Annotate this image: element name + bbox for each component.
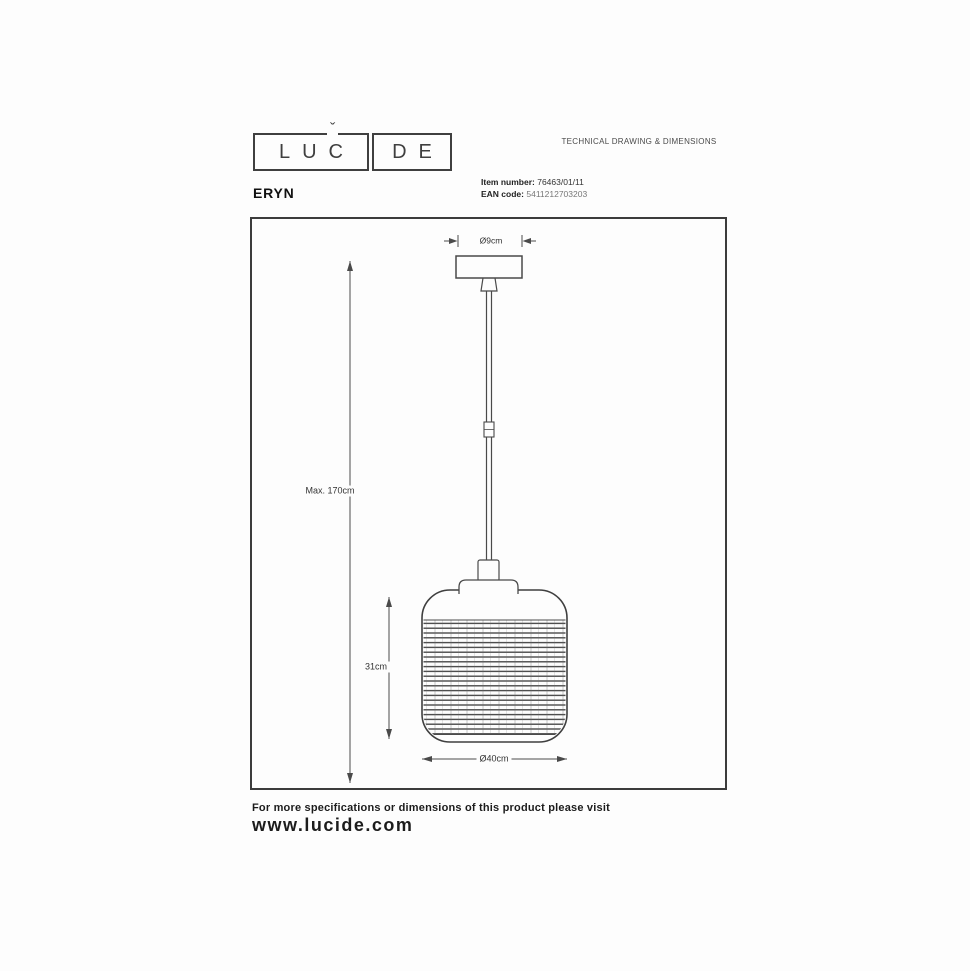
rod-connector [478, 560, 499, 581]
ean-row: EAN code: 5411212703203 [481, 188, 587, 200]
ean-value: 5411212703203 [526, 189, 587, 199]
dim-total-height-label: Max. 170cm [302, 486, 357, 497]
item-number-row: Item number: 76463/01/11 [481, 176, 587, 188]
dim-shade-diameter-label: Ø40cm [476, 754, 511, 765]
ceiling-canopy [456, 256, 522, 291]
product-meta: Item number: 76463/01/11 EAN code: 54112… [481, 176, 587, 200]
logo-accent-mark: ˇ [327, 123, 338, 137]
dim-canopy-diameter-label: Ø9cm [477, 236, 506, 247]
logo-letters-right: DE [380, 142, 444, 162]
logo-box-right: DE [372, 133, 452, 171]
canopy-stem [481, 278, 497, 291]
technical-drawing-svg [252, 219, 725, 788]
item-number-label: Item number: [481, 177, 535, 187]
logo-letters-left: LUC [267, 142, 355, 162]
drawing-frame: Ø9cm Max. 170cm 31cm Ø40cm [250, 217, 727, 790]
logo-box-left: LUC [253, 133, 369, 171]
page: LUC DE ˇ TECHNICAL DRAWING & DIMENSIONS … [0, 0, 970, 971]
rod-joint [484, 422, 494, 437]
doc-title: TECHNICAL DRAWING & DIMENSIONS [550, 137, 728, 146]
footer-note: For more specifications or dimensions of… [252, 802, 610, 814]
product-name: ERYN [253, 185, 295, 201]
website-text: www.lucide.com [252, 815, 413, 836]
shade-weave [422, 620, 567, 735]
lamp-shade [422, 590, 567, 742]
ean-label: EAN code: [481, 189, 524, 199]
dim-total-height-line [347, 261, 353, 783]
lucide-logo: LUC DE ˇ [253, 133, 452, 171]
dim-shade-height-label: 31cm [362, 662, 390, 673]
item-number-value: 76463/01/11 [537, 177, 584, 187]
shade-cap [459, 580, 518, 594]
